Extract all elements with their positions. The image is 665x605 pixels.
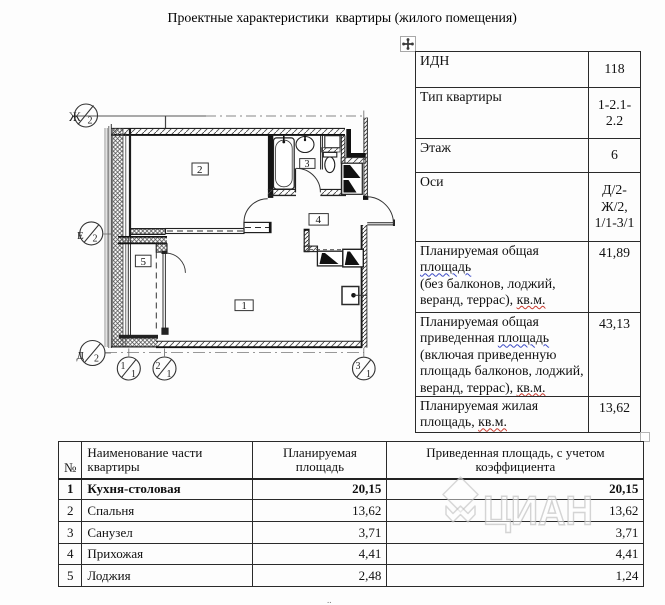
svg-text:3: 3 bbox=[356, 361, 361, 372]
svg-text:2: 2 bbox=[93, 234, 98, 245]
svg-text:Ж: Ж bbox=[69, 109, 81, 124]
svg-text:2: 2 bbox=[156, 361, 161, 372]
svg-text:Е: Е bbox=[77, 230, 84, 242]
svg-text:5: 5 bbox=[141, 256, 147, 268]
svg-text:3: 3 bbox=[305, 159, 310, 170]
svg-text:1: 1 bbox=[131, 369, 136, 380]
svg-text:ЦИАН: ЦИАН bbox=[483, 488, 593, 534]
svg-text:1: 1 bbox=[121, 361, 126, 372]
svg-text:2: 2 bbox=[94, 354, 99, 365]
svg-text:2: 2 bbox=[88, 116, 93, 127]
svg-text:1: 1 bbox=[242, 301, 247, 312]
svg-text:1: 1 bbox=[167, 369, 172, 380]
svg-text:1: 1 bbox=[366, 369, 371, 380]
svg-text:4: 4 bbox=[316, 214, 322, 226]
svg-text:Д: Д bbox=[77, 350, 85, 362]
svg-text:2: 2 bbox=[197, 164, 203, 176]
